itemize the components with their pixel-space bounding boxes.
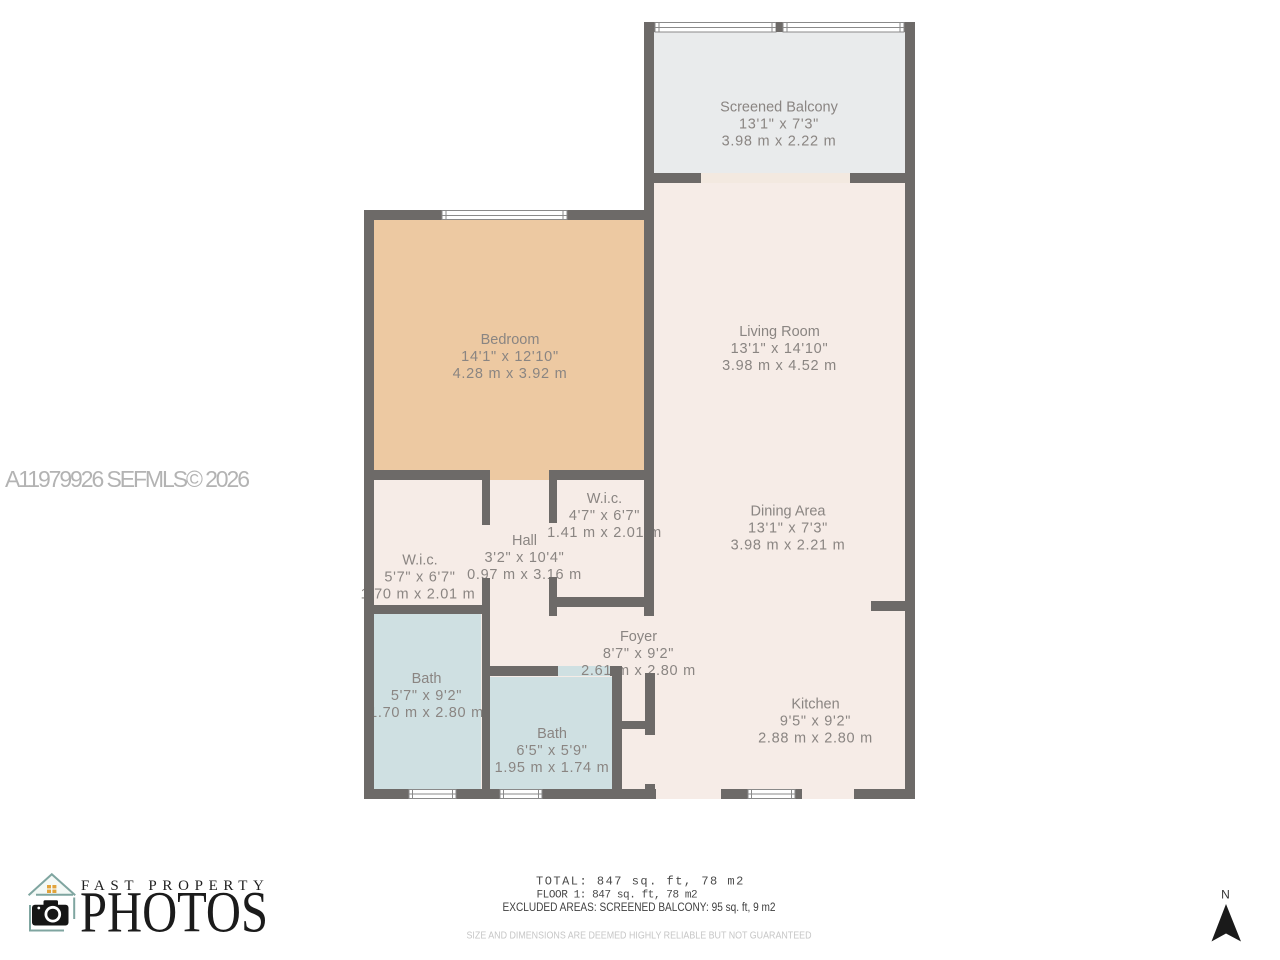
svg-text:TOTAL: 847 sq. ft, 78 m2: TOTAL: 847 sq. ft, 78 m2: [536, 875, 745, 889]
svg-text:1.70 m x 2.01 m: 1.70 m x 2.01 m: [361, 587, 476, 603]
svg-text:5'7" x 6'7": 5'7" x 6'7": [384, 570, 455, 586]
svg-text:8'7" x 9'2": 8'7" x 9'2": [603, 646, 674, 662]
svg-text:EXCLUDED AREAS: SCREENED BALCO: EXCLUDED AREAS: SCREENED BALCONY: 95 sq.…: [503, 902, 776, 914]
svg-text:9'5" x 9'2": 9'5" x 9'2": [780, 714, 851, 730]
svg-text:2.88 m x 2.80 m: 2.88 m x 2.80 m: [758, 731, 873, 747]
svg-text:3.98 m x 2.22 m: 3.98 m x 2.22 m: [722, 134, 837, 150]
svg-text:6'5" x 5'9": 6'5" x 5'9": [516, 743, 587, 759]
svg-text:1.95 m x 1.74 m: 1.95 m x 1.74 m: [495, 760, 610, 776]
svg-text:Dining Area: Dining Area: [751, 504, 827, 520]
svg-text:3'2" x 10'4": 3'2" x 10'4": [484, 550, 564, 566]
svg-text:14'1" x 12'10": 14'1" x 12'10": [461, 349, 559, 365]
svg-text:4.28 m x 3.92 m: 4.28 m x 3.92 m: [453, 366, 568, 382]
svg-text:13'1" x 14'10": 13'1" x 14'10": [731, 341, 829, 357]
svg-text:W.i.c.: W.i.c.: [587, 491, 622, 507]
svg-text:3.98 m x 2.21 m: 3.98 m x 2.21 m: [731, 538, 846, 554]
svg-text:13'1" x 7'3": 13'1" x 7'3": [739, 117, 819, 133]
svg-text:3.98 m x 4.52 m: 3.98 m x 4.52 m: [722, 358, 837, 374]
svg-text:Bedroom: Bedroom: [481, 332, 540, 348]
svg-text:1.70 m x 2.80 m: 1.70 m x 2.80 m: [369, 705, 484, 721]
svg-text:Bath: Bath: [537, 726, 567, 742]
svg-text:PHOTOS: PHOTOS: [80, 880, 268, 945]
svg-text:5'7" x 9'2": 5'7" x 9'2": [391, 688, 462, 704]
svg-text:4'7" x 6'7": 4'7" x 6'7": [569, 508, 640, 524]
svg-text:A11979926 SEFMLS© 2026: A11979926 SEFMLS© 2026: [5, 466, 250, 492]
svg-text:W.i.c.: W.i.c.: [402, 553, 437, 569]
svg-text:Living Room: Living Room: [739, 324, 820, 340]
svg-text:SIZE AND DIMENSIONS ARE DEEMED: SIZE AND DIMENSIONS ARE DEEMED HIGHLY RE…: [467, 931, 812, 942]
svg-text:FLOOR 1: 847 sq. ft, 78 m2: FLOOR 1: 847 sq. ft, 78 m2: [537, 890, 698, 902]
svg-text:Kitchen: Kitchen: [791, 697, 839, 713]
svg-text:13'1" x 7'3": 13'1" x 7'3": [748, 521, 828, 537]
svg-text:N: N: [1221, 888, 1230, 902]
svg-text:Bath: Bath: [412, 671, 442, 687]
svg-text:Screened Balcony: Screened Balcony: [720, 100, 838, 116]
svg-text:Foyer: Foyer: [620, 629, 657, 645]
svg-text:Hall: Hall: [512, 533, 537, 549]
svg-text:2.61 m x 2.80 m: 2.61 m x 2.80 m: [581, 663, 696, 679]
